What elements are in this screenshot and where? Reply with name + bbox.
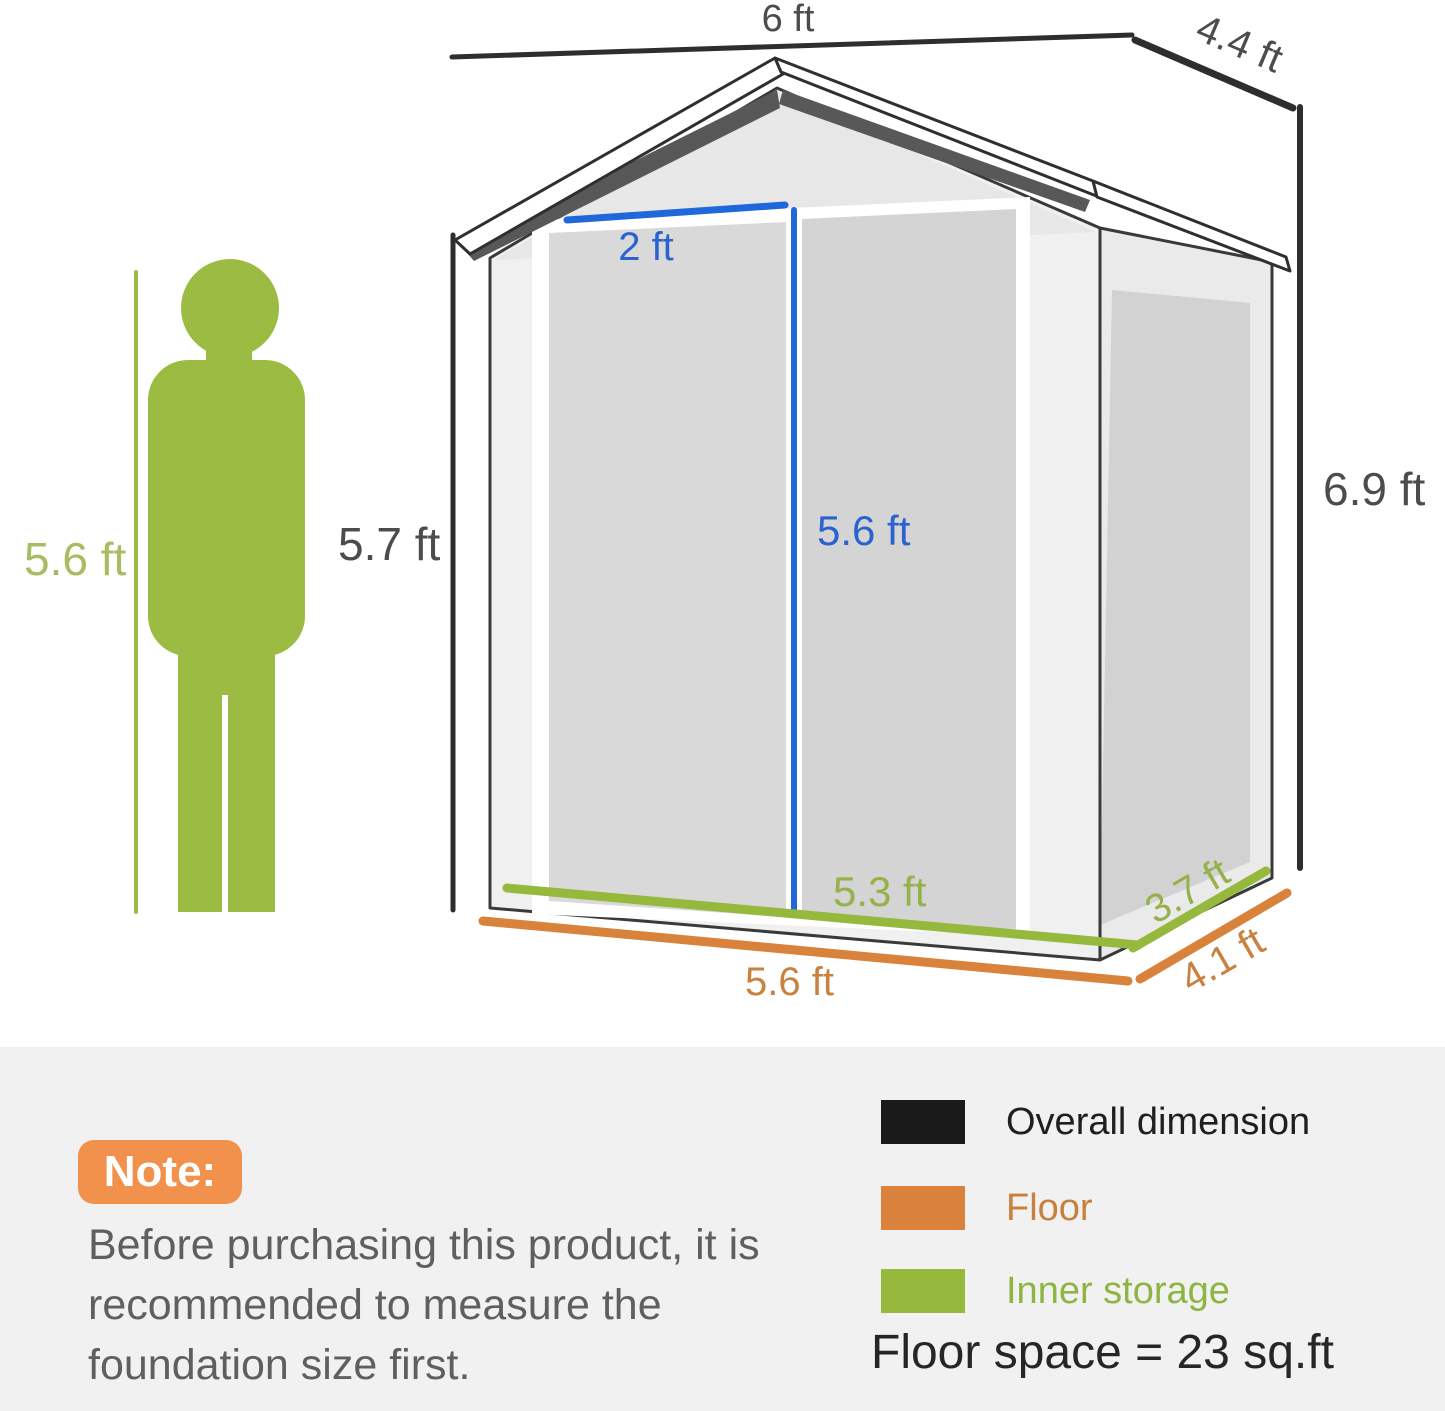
legend-label-inner-storage: Inner storage [1006, 1269, 1230, 1313]
shed-side-panel [1100, 290, 1250, 925]
note-badge: Note: [78, 1140, 242, 1204]
overall-height-label: 6.9 ft [1323, 463, 1426, 515]
shed-dimension-diagram: 6 ft 4.4 ft 6.9 ft 5.7 ft 5.6 ft 2 ft 5.… [0, 0, 1445, 1411]
note-badge-label: Note: [104, 1147, 216, 1197]
eave-height-label: 5.7 ft [338, 518, 441, 570]
door-right-panel [802, 209, 1016, 929]
floor-space-text: Floor space = 23 sq.ft [871, 1325, 1334, 1380]
door-left-panel [549, 222, 786, 917]
door-width-label: 2 ft [618, 225, 674, 269]
person-torso [148, 360, 305, 656]
note-text: Before purchasing this product, it is re… [88, 1215, 828, 1396]
shed-diagram-graphic: 6 ft 4.4 ft 6.9 ft 5.7 ft 5.6 ft 2 ft 5.… [0, 0, 1445, 1047]
legend-label-overall-dimension: Overall dimension [1006, 1100, 1310, 1144]
legend-label-floor: Floor [1006, 1186, 1093, 1230]
person-leg-gap [222, 695, 228, 912]
info-panel: Note: Before purchasing this product, it… [0, 1047, 1445, 1411]
legend-swatch-overall-dimension [881, 1100, 965, 1144]
legend-swatch-inner-storage [881, 1269, 965, 1313]
inner-width-label: 5.3 ft [833, 868, 927, 915]
legend-swatch-floor [881, 1186, 965, 1230]
person-silhouette [148, 259, 305, 912]
person-height-label: 5.6 ft [24, 533, 127, 585]
door-height-label: 5.6 ft [817, 507, 911, 554]
floor-width-label: 5.6 ft [745, 960, 834, 1004]
overall-width-label: 6 ft [762, 0, 815, 40]
